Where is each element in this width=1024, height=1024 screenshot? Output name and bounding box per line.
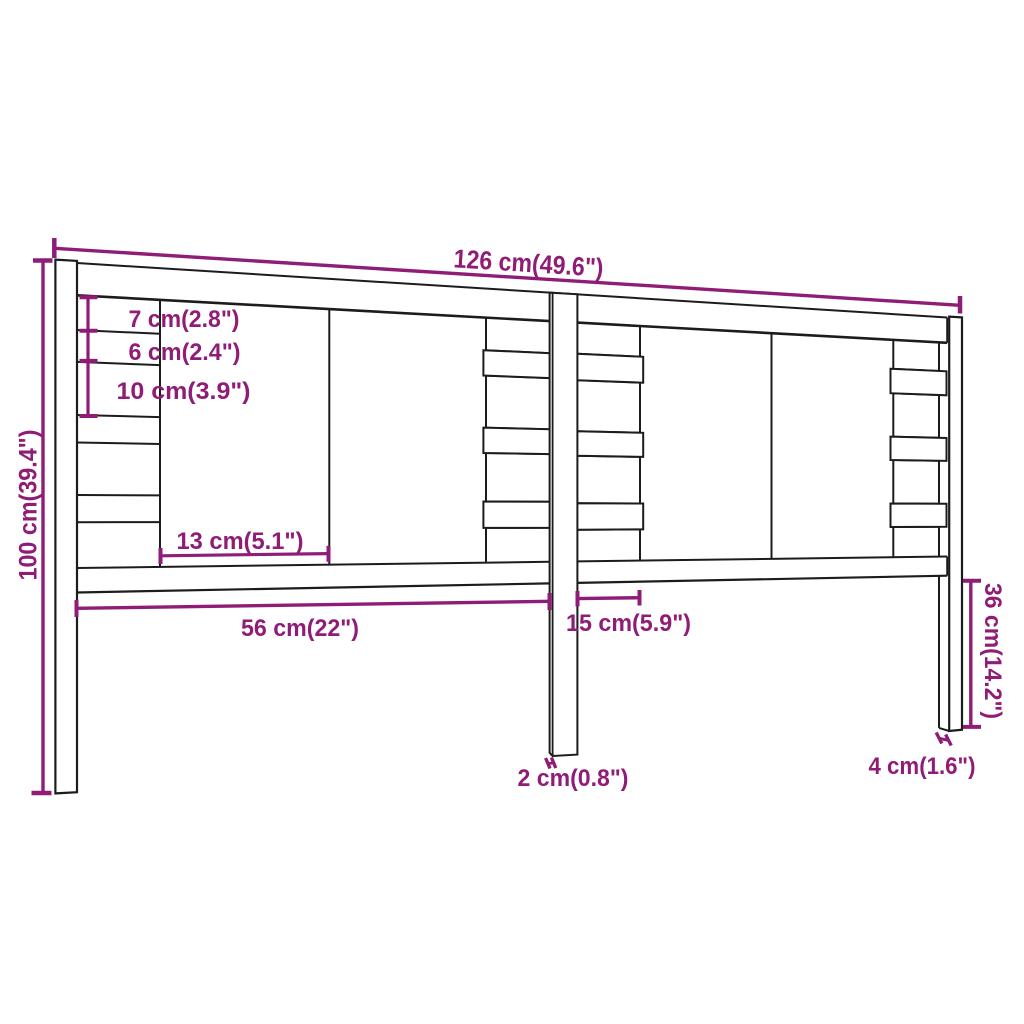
svg-text:56 cm(22"): 56 cm(22")	[241, 615, 359, 642]
svg-text:6 cm(2.4"): 6 cm(2.4")	[129, 339, 241, 366]
svg-text:126 cm(49.6"): 126 cm(49.6")	[453, 243, 605, 282]
svg-text:15 cm(5.9"): 15 cm(5.9")	[566, 610, 691, 637]
svg-text:100 cm(39.4"): 100 cm(39.4")	[15, 430, 43, 581]
svg-text:36 cm(14.2"): 36 cm(14.2")	[979, 583, 1006, 719]
svg-text:10 cm(3.9"): 10 cm(3.9")	[117, 378, 251, 405]
svg-text:13 cm(5.1"): 13 cm(5.1")	[177, 528, 304, 555]
svg-text:7 cm(2.8"): 7 cm(2.8")	[129, 306, 240, 333]
svg-text:2 cm(0.8"): 2 cm(0.8")	[518, 765, 629, 792]
svg-text:4 cm(1.6"): 4 cm(1.6")	[869, 753, 976, 780]
